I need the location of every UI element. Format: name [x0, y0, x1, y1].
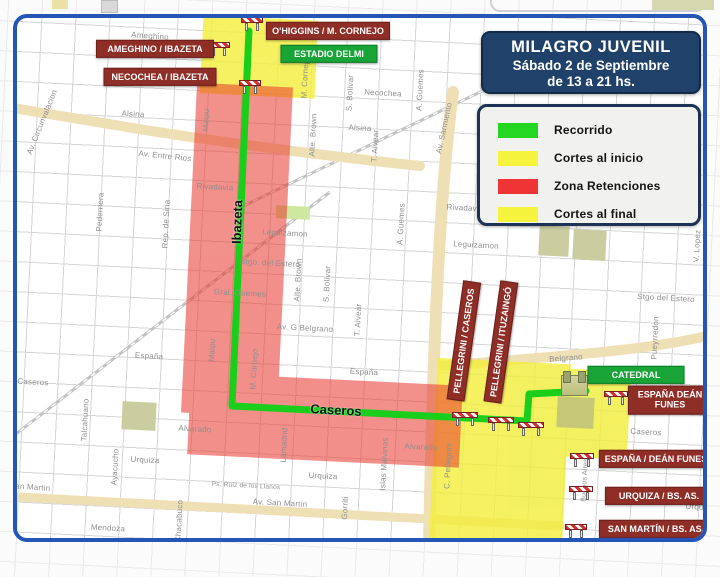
legend-swatch [498, 179, 538, 194]
legend-swatch [498, 123, 538, 138]
street-label: España [350, 367, 379, 377]
street-label: Urquiza [130, 455, 159, 466]
barrier-icon [239, 80, 261, 95]
closure-marker: URQUIZA / BS. AS. [605, 487, 707, 505]
closure-marker: O'HIGGINS / M. CORNEJO [266, 22, 390, 40]
street-label: Urquiza [308, 471, 337, 482]
barrier-icon [565, 524, 587, 539]
venue-marker: ESTADIO DELMI [281, 45, 378, 63]
barrier-icon [488, 417, 514, 432]
route-map: AmeghinoAv. CircunvalacionAlsinaAv. Entr… [0, 0, 720, 577]
legend-label: Cortes al inicio [554, 151, 643, 165]
closure-marker: ESPAÑA / DEÁN FUNES [599, 450, 707, 468]
street-label: Maipu [207, 338, 217, 361]
legend: RecorridoCortes al inicioZona Retencione… [477, 104, 701, 226]
legend-item: Recorrido [498, 116, 698, 144]
street-label: S. Bolivar [322, 266, 333, 303]
route-street-label: Caseros [310, 401, 362, 419]
street-label: Caseros [630, 427, 662, 438]
plaza [556, 396, 594, 429]
event-date: Sábado 2 de Septiembre [483, 58, 699, 74]
closure-marker: AMEGHINO / IBAZETA [96, 40, 214, 58]
street-label: Necochea [364, 88, 402, 99]
closure-marker: NECOCHEA / IBAZETA [104, 68, 217, 86]
street-label: T. Alvear [370, 130, 381, 163]
event-title: MILAGRO JUVENIL [483, 38, 699, 58]
street-label: Alsina [121, 109, 144, 119]
legend-label: Zona Retenciones [554, 179, 661, 193]
legend-item: Cortes al final [498, 200, 698, 228]
barrier-icon [570, 453, 594, 468]
street-label: Mendoza [91, 523, 126, 534]
title-box: MILAGRO JUVENIL Sábado 2 de Septiembre d… [481, 31, 701, 94]
street-label: Rivadavia [196, 182, 233, 193]
street-label: T. Alvear [353, 304, 364, 337]
legend-label: Recorrido [554, 123, 612, 137]
street-label: Maipu [201, 108, 211, 131]
street-label: S. Bolivar [345, 75, 356, 112]
closure-marker: SAN MARTÍN / BS. AS. [599, 520, 707, 538]
barrier-icon [569, 486, 593, 501]
street-label: Alvarado [178, 424, 212, 435]
street-label: Caseros [17, 377, 49, 388]
street-label: Gorriti [340, 496, 350, 520]
legend-swatch [498, 151, 538, 166]
event-time: de 13 a 21 hs. [483, 74, 699, 90]
venue-marker: CATEDRAL [588, 366, 685, 384]
street-label: Alvarado [404, 442, 438, 453]
barrier-icon [604, 391, 628, 406]
legend-item: Zona Retenciones [498, 172, 698, 200]
street-label: Alsina [348, 123, 371, 133]
street-label: V. Lopez [692, 230, 703, 263]
legend-label: Cortes al final [554, 207, 636, 221]
barrier-icon [452, 412, 478, 427]
legend-swatch [498, 207, 538, 222]
street-label: Ayacucho [110, 448, 121, 485]
cathedral-icon [561, 375, 588, 396]
barrier-icon [241, 17, 263, 32]
closure-marker: ESPAÑA DEÁN FUNES [628, 386, 707, 415]
street-label: España [135, 351, 164, 361]
barrier-icon [518, 422, 544, 437]
route-street-label: Ibazeta [229, 200, 246, 245]
street-label: Lamadrid [279, 427, 290, 462]
legend-item: Cortes al inicio [498, 144, 698, 172]
